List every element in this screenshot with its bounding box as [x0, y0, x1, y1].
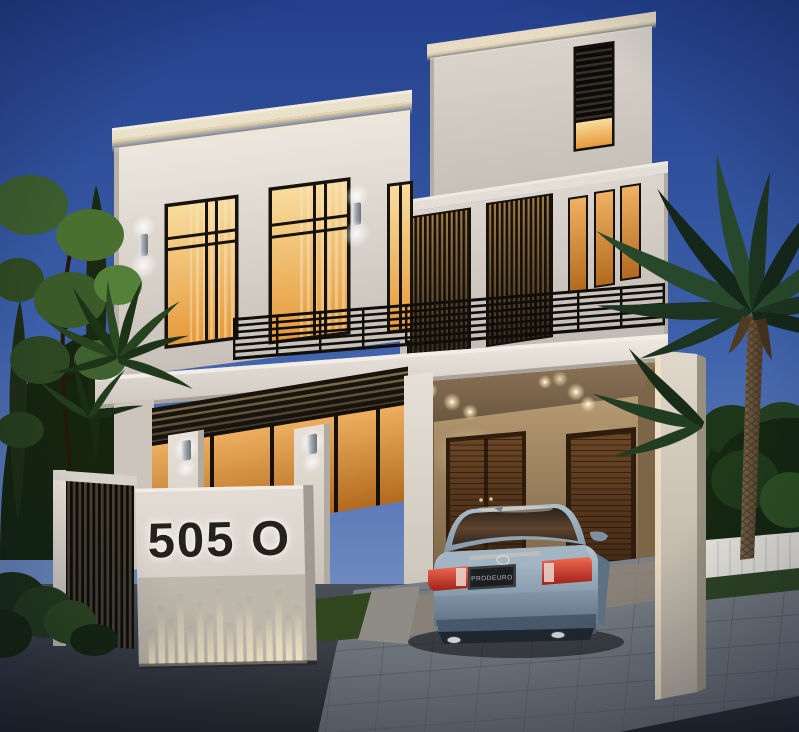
vignette-overlay — [0, 0, 799, 732]
architectural-render: Dusk architectural rendering of a modern… — [0, 0, 799, 732]
scene: Dusk architectural rendering of a modern… — [0, 0, 799, 732]
